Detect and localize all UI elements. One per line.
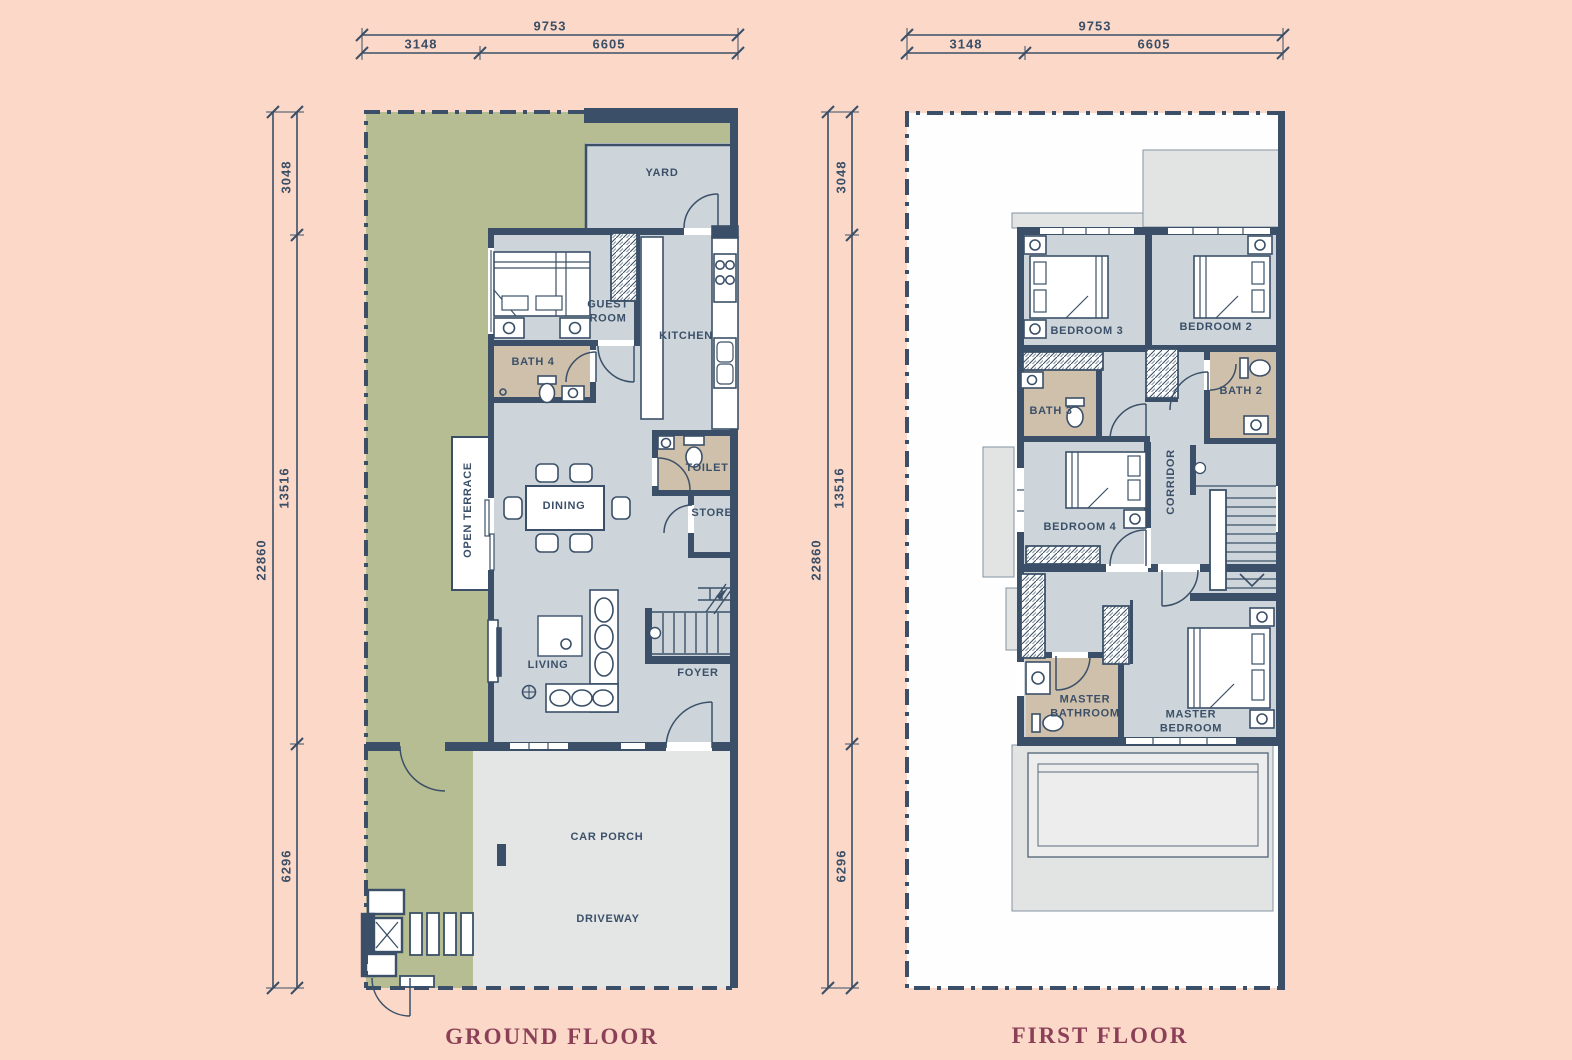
room-label-bath4: BATH 4 <box>511 356 554 370</box>
room-label-car-porch: CAR PORCH <box>571 831 644 845</box>
driveway-area <box>473 748 738 988</box>
wardrobe-icon <box>1023 352 1103 370</box>
first-floor-title: FIRST FLOOR <box>1012 1023 1189 1049</box>
room-label-yard: YARD <box>646 167 679 181</box>
room-label-corridor: CORRIDOR <box>1165 449 1179 515</box>
dim-label-width-right: 6605 <box>1138 37 1171 52</box>
room-label-kitchen: KITCHEN <box>659 330 713 344</box>
wardrobe-icon <box>1103 606 1129 664</box>
yard-floor <box>586 143 735 229</box>
room-label-foyer: FOYER <box>677 667 718 681</box>
dim-label-total-height: 22860 <box>809 539 824 580</box>
dim-label-height-mid: 13516 <box>277 467 292 508</box>
dim-label-total-height: 22860 <box>254 539 269 580</box>
room-label-bedroom3: BEDROOM 3 <box>1051 325 1124 339</box>
dim-label-width-left: 3148 <box>950 37 983 52</box>
wardrobe-icon <box>1026 546 1100 564</box>
coffee-table-icon <box>538 616 582 656</box>
floorplan-graphics <box>0 0 1572 1060</box>
room-label-living: LIVING <box>528 659 569 673</box>
floor-lamp-icon <box>523 686 536 699</box>
room-label-store: STORE <box>691 507 732 521</box>
tv-console-icon <box>488 620 501 682</box>
balcony-roof <box>1012 745 1273 911</box>
wardrobe-icon <box>611 233 637 301</box>
dim-label-height-bottom: 6296 <box>834 850 849 883</box>
room-label-toilet: TOILET <box>685 462 728 476</box>
wardrobe-icon <box>1021 574 1045 658</box>
dim-label-total-width: 9753 <box>1079 19 1112 34</box>
room-label-open-terrace: OPEN TERRACE <box>462 462 476 558</box>
dim-label-height-top: 3048 <box>279 161 294 194</box>
dim-label-height-bottom: 6296 <box>279 850 294 883</box>
room-label-bedroom2: BEDROOM 2 <box>1180 321 1253 335</box>
floor-plan-sheet: 9753 3148 6605 22860 3048 13516 6296 975… <box>0 0 1572 1060</box>
wardrobe-icon <box>1146 349 1178 398</box>
ground-floor-title: GROUND FLOOR <box>445 1024 659 1050</box>
room-label-bedroom4: BEDROOM 4 <box>1044 521 1117 535</box>
dim-label-width-right: 6605 <box>593 37 626 52</box>
room-label-guest-room: GUEST ROOM <box>577 298 639 326</box>
dim-label-width-left: 3148 <box>405 37 438 52</box>
room-label-bath3: BATH 3 <box>1029 405 1072 419</box>
dim-label-total-width: 9753 <box>534 19 567 34</box>
room-label-master-bedroom: MASTER BEDROOM <box>1151 708 1231 736</box>
room-label-driveway: DRIVEWAY <box>576 913 639 927</box>
dim-label-height-mid: 13516 <box>832 467 847 508</box>
dim-label-height-top: 3048 <box>834 161 849 194</box>
room-label-bath2: BATH 2 <box>1219 385 1262 399</box>
first-floor-plan <box>821 28 1289 994</box>
room-label-dining: DINING <box>543 500 586 514</box>
porch-pillar <box>497 844 506 866</box>
room-label-master-bathroom: MASTER BATHROOM <box>1040 693 1130 721</box>
